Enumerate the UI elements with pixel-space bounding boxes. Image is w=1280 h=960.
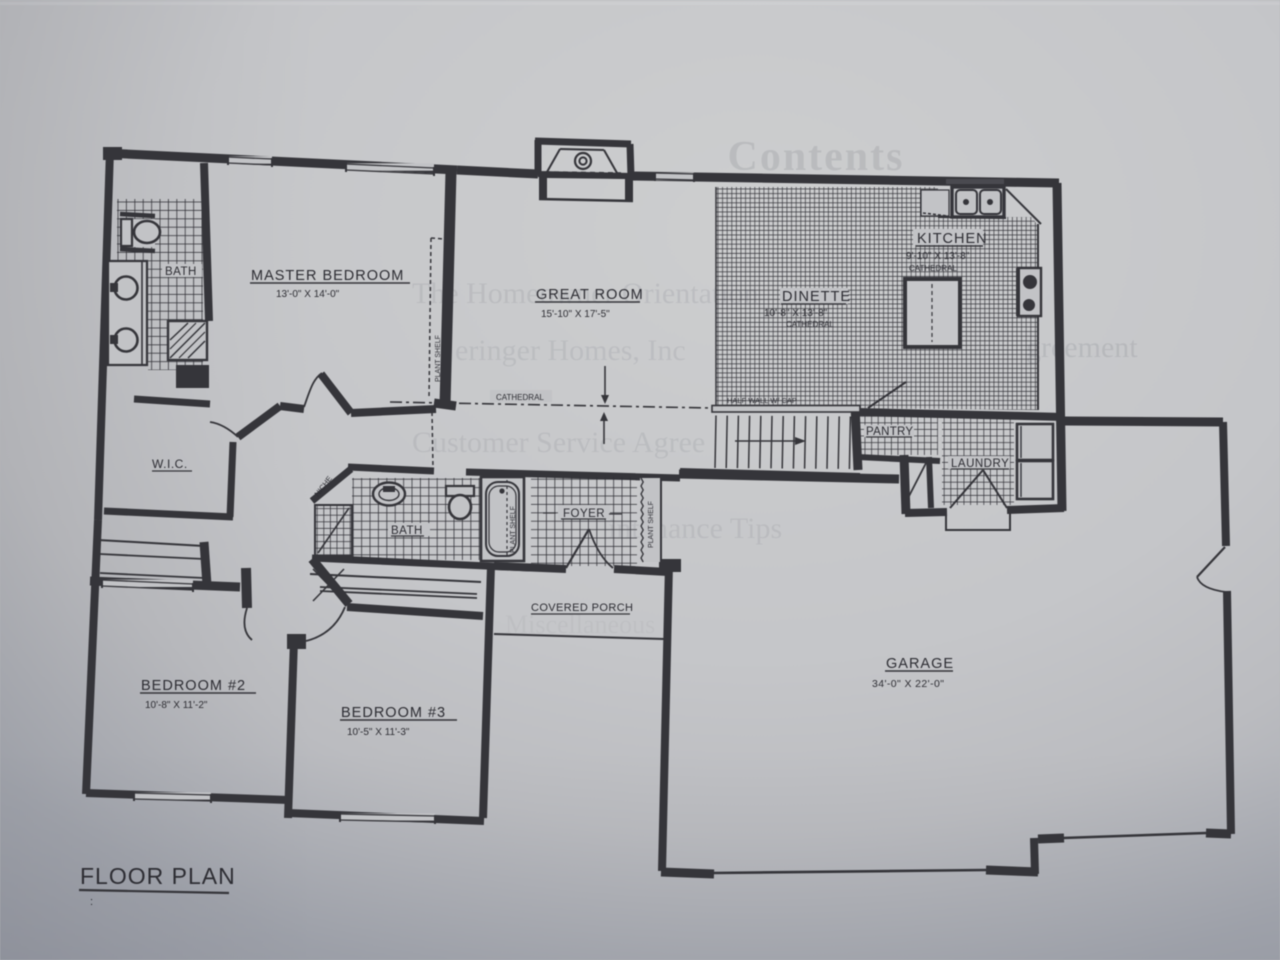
svg-text:PLANT SHELF: PLANT SHELF: [510, 506, 517, 553]
svg-text:CATHEDRAL: CATHEDRAL: [909, 264, 957, 273]
svg-text:BATH: BATH: [165, 266, 197, 278]
svg-text:CATHEDRAL: CATHEDRAL: [496, 393, 544, 402]
svg-text:15'-10" X 17'-5": 15'-10" X 17'-5": [541, 309, 610, 320]
svg-text:BEDROOM #2: BEDROOM #2: [141, 678, 246, 694]
svg-text:GARAGE: GARAGE: [886, 656, 954, 672]
svg-text:FOYER: FOYER: [563, 508, 605, 520]
svg-text:10'-8" X 11'-2": 10'-8" X 11'-2": [145, 700, 208, 711]
svg-text:HALF WALL W/ CAP: HALF WALL W/ CAP: [727, 396, 797, 405]
svg-text:W.I.C.: W.I.C.: [152, 457, 188, 471]
svg-text:10'-8" X 13'-8": 10'-8" X 13'-8": [764, 308, 828, 319]
svg-text:PANTRY: PANTRY: [866, 426, 913, 438]
svg-text:LAUNDRY: LAUNDRY: [951, 458, 1009, 470]
svg-text:Customer Service Agree: Customer Service Agree: [412, 426, 705, 459]
svg-text:PLANT SHELF: PLANT SHELF: [435, 335, 442, 382]
svg-text:GREAT ROOM: GREAT ROOM: [536, 287, 644, 303]
svg-text:9'-10" X 13'-8": 9'-10" X 13'-8": [906, 251, 970, 262]
svg-text:34'-0" X 22'-0": 34'-0" X 22'-0": [872, 678, 944, 690]
svg-text:13'-0" X 14'-0": 13'-0" X 14'-0": [276, 289, 340, 300]
svg-text:KITCHEN: KITCHEN: [917, 231, 988, 247]
svg-text:CATHEDRAL: CATHEDRAL: [786, 320, 834, 329]
svg-text:Contents: Contents: [727, 134, 904, 180]
svg-text:eringer Homes, Inc: eringer Homes, Inc: [455, 334, 686, 367]
svg-text:greement: greement: [1026, 331, 1138, 364]
svg-text:BEDROOM #3: BEDROOM #3: [341, 705, 446, 721]
svg-text:COVERED PORCH: COVERED PORCH: [531, 602, 633, 614]
svg-text:10'-5" X 11'-3": 10'-5" X 11'-3": [347, 727, 410, 738]
svg-text:FLOOR PLAN: FLOOR PLAN: [80, 863, 236, 889]
svg-text:DINETTE: DINETTE: [782, 289, 851, 305]
svg-text:MASTER BEDROOM: MASTER BEDROOM: [251, 268, 404, 284]
svg-text:BATH: BATH: [391, 525, 423, 537]
svg-text:PLANT SHELF: PLANT SHELF: [648, 501, 655, 548]
svg-text::: :: [90, 896, 93, 908]
